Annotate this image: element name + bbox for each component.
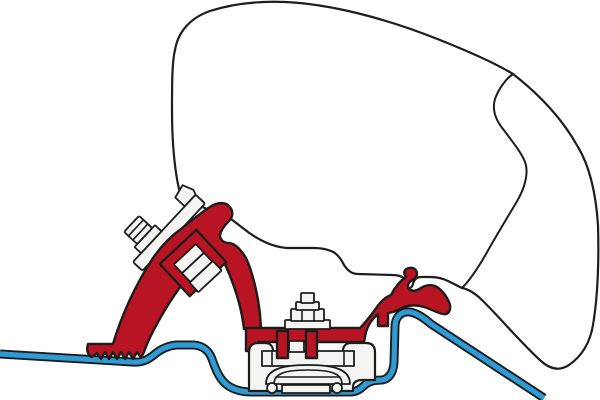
center-bolt-tip	[301, 293, 314, 303]
clamp-rivet-left	[267, 383, 277, 393]
diagram-canvas	[0, 0, 600, 400]
bracket-leg-left	[277, 331, 288, 358]
clamp-rivet-right	[332, 383, 342, 393]
clamp-bottom-slot	[282, 385, 330, 393]
adapter-diagram	[0, 0, 600, 400]
bracket-leg-right	[306, 331, 317, 358]
clamp-center-tab	[289, 341, 304, 352]
